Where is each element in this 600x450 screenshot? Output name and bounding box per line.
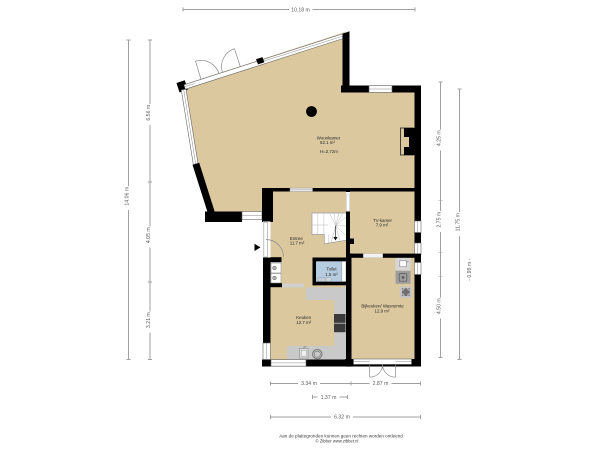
svg-text:10.18 m: 10.18 m xyxy=(291,7,310,13)
svg-text:3.34 m: 3.34 m xyxy=(301,381,317,387)
svg-text:2.75 m: 2.75 m xyxy=(436,212,442,228)
svg-text:52.1 m²: 52.1 m² xyxy=(320,140,335,145)
svg-text:11.7 m²: 11.7 m² xyxy=(290,241,305,246)
svg-text:6.56 m: 6.56 m xyxy=(146,105,152,121)
svg-text:H=2,72m: H=2,72m xyxy=(320,149,338,154)
svg-text:1.5 m²: 1.5 m² xyxy=(325,272,338,277)
svg-text:3.21 m: 3.21 m xyxy=(146,312,152,328)
svg-text:12.9 m²: 12.9 m² xyxy=(375,309,390,314)
svg-text:Toilet: Toilet xyxy=(326,267,337,272)
svg-text:- 0.99 m -: - 0.99 m - xyxy=(467,258,473,280)
svg-text:11.75 m: 11.75 m xyxy=(456,213,462,231)
svg-text:12.7 m²: 12.7 m² xyxy=(296,320,311,325)
svg-text:4.05 m: 4.05 m xyxy=(146,227,152,243)
svg-text:7.9 m²: 7.9 m² xyxy=(376,223,389,228)
svg-text:4.50 m: 4.50 m xyxy=(436,298,442,314)
svg-text:6.32 m: 6.32 m xyxy=(334,415,350,421)
svg-text:14.06 m: 14.06 m xyxy=(124,187,130,206)
svg-text:2.87 m: 2.87 m xyxy=(373,381,389,387)
svg-text:4.25 m: 4.25 m xyxy=(436,130,442,146)
svg-text:1.37 m: 1.37 m xyxy=(321,395,337,401)
svg-text:© Zibber www.zibber.nl: © Zibber www.zibber.nl xyxy=(316,439,359,444)
